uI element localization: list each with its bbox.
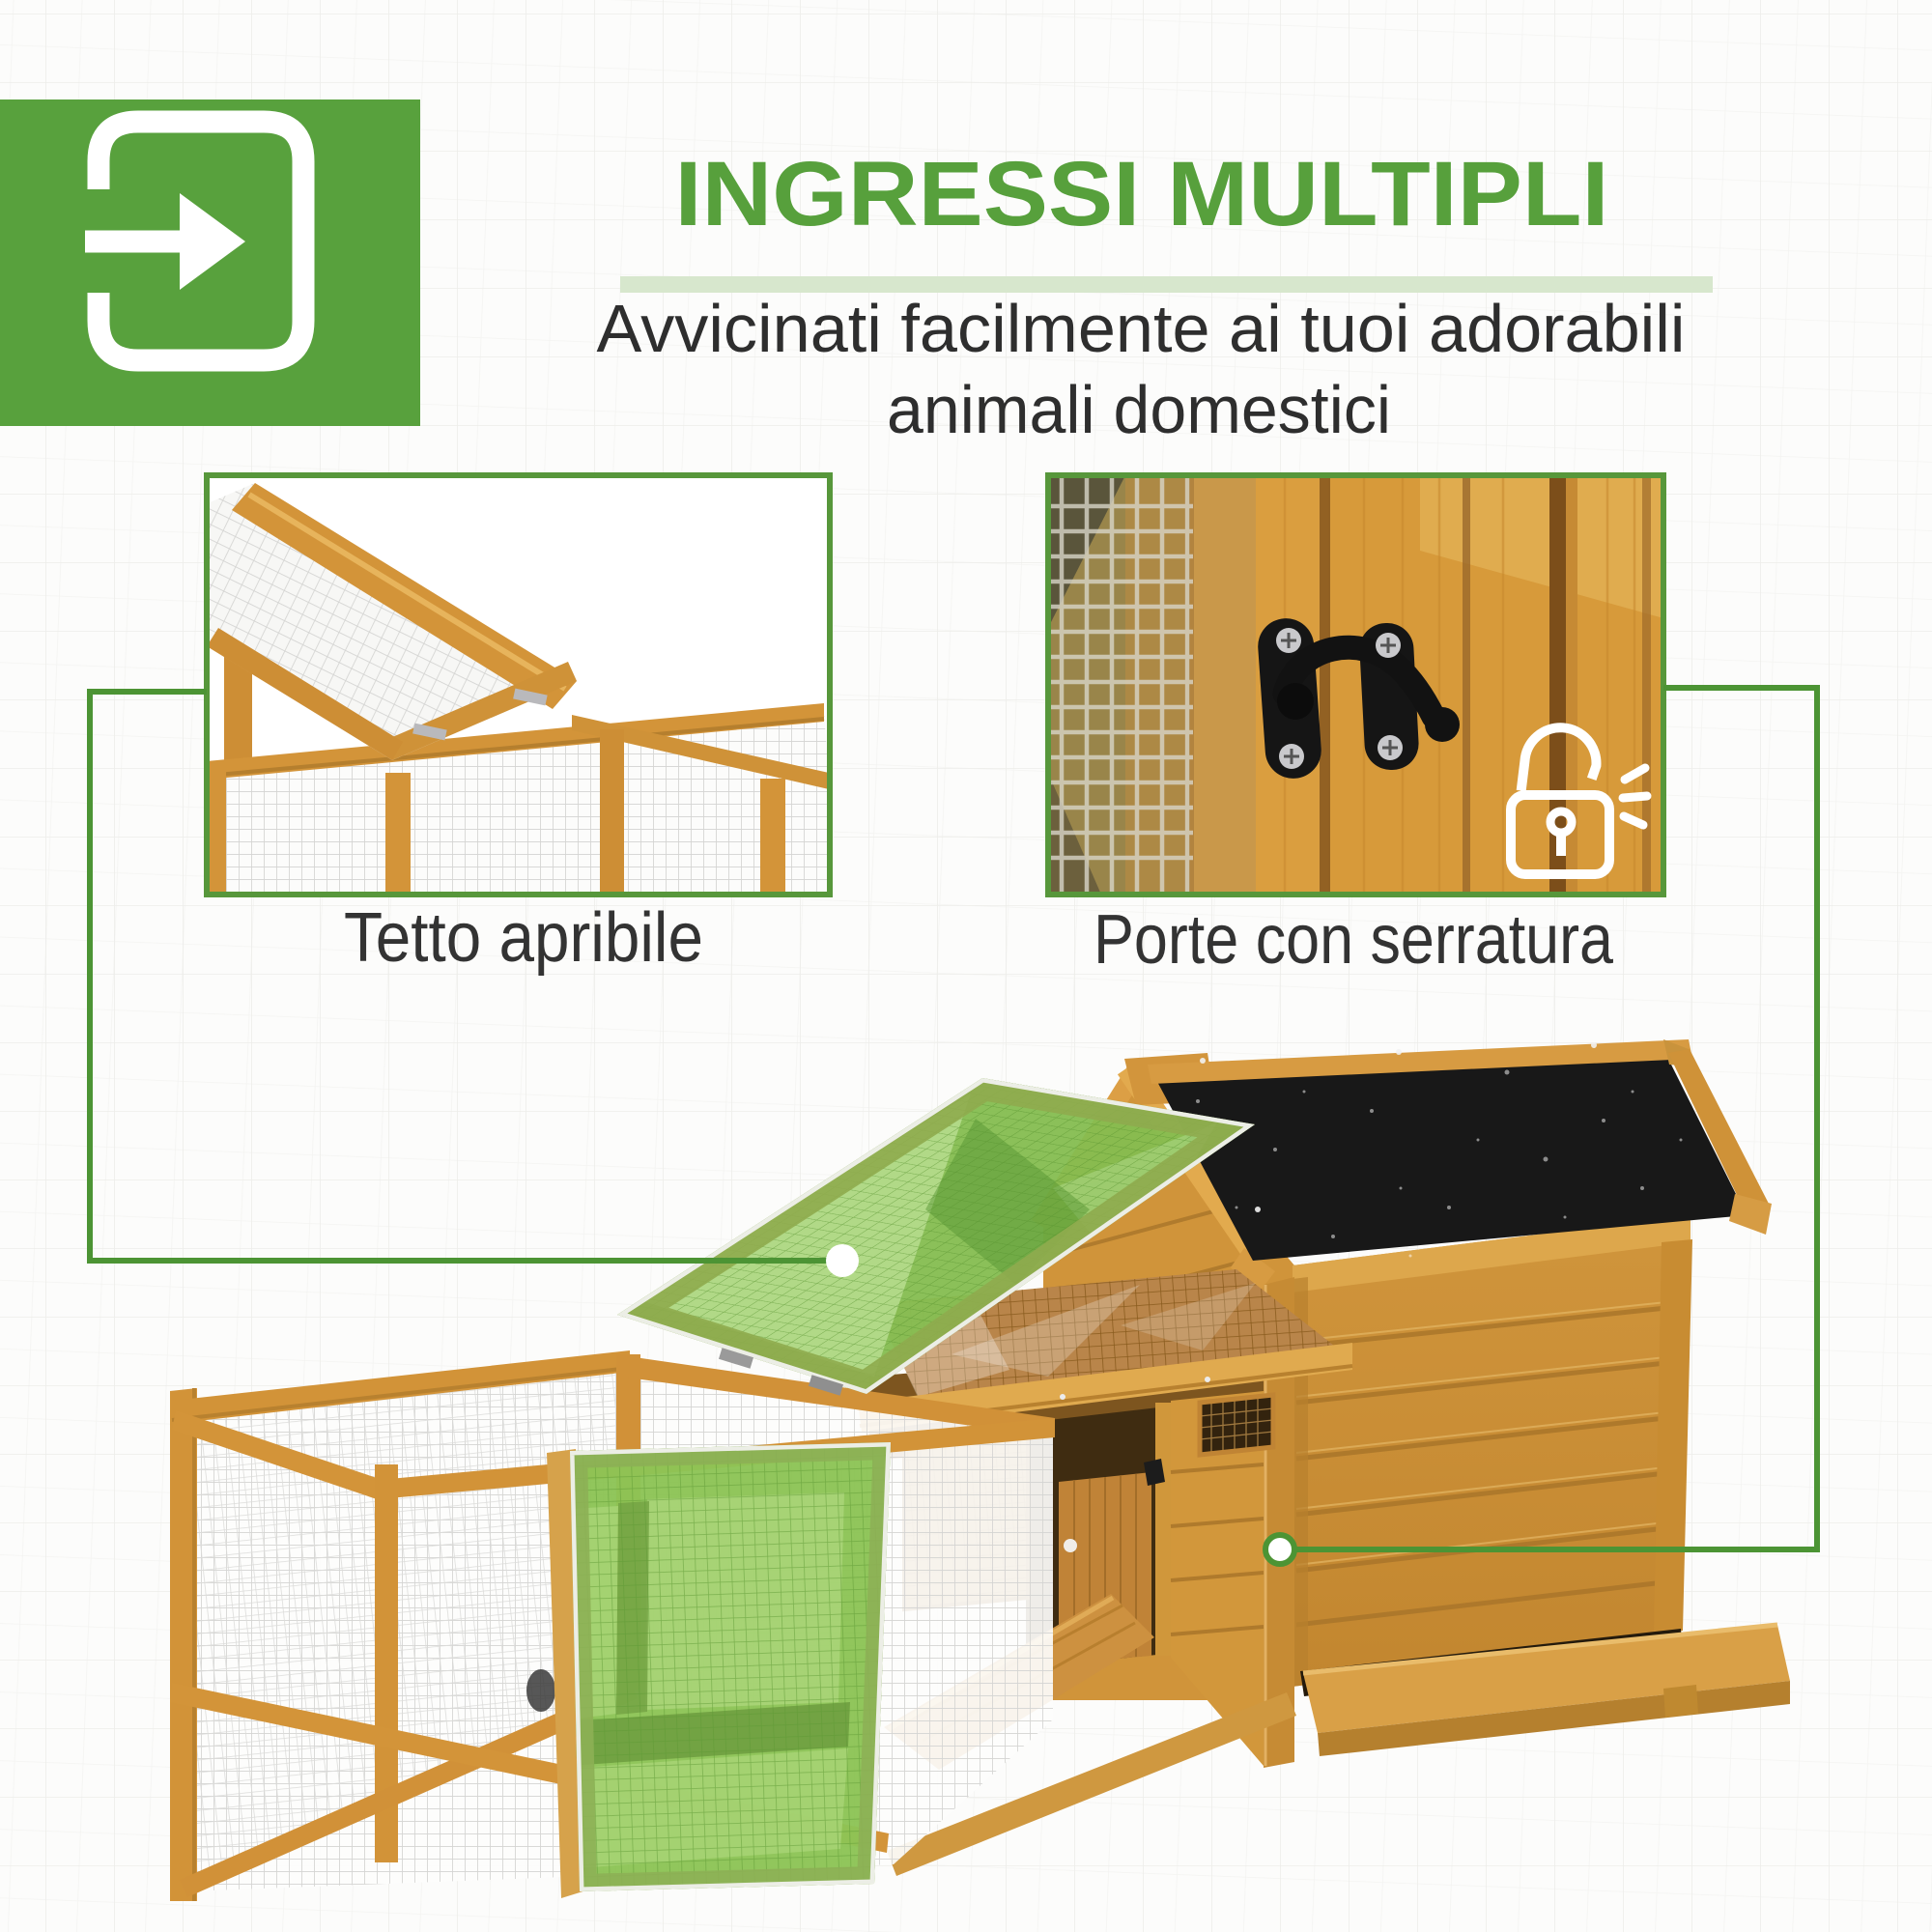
svg-text:INGRESSI MULTIPLI: INGRESSI MULTIPLI	[675, 143, 1609, 245]
svg-text:animali domestici: animali domestici	[887, 372, 1391, 447]
svg-text:Tetto apribile: Tetto apribile	[344, 899, 703, 977]
svg-text:Avvicinati facilmente ai tuoi: Avvicinati facilmente ai tuoi adorabili	[597, 291, 1686, 366]
svg-text:Porte con serratura: Porte con serratura	[1094, 901, 1614, 979]
